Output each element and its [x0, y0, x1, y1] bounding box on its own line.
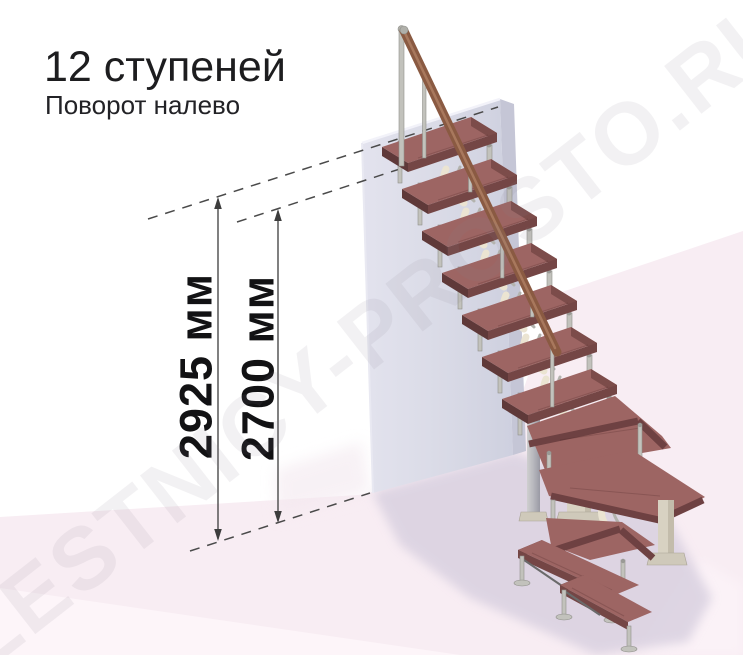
handrail-ferrule [400, 26, 408, 34]
staircase-diagram: 2925 мм 2700 мм [0, 0, 743, 655]
page-subtitle: Поворот налево [45, 90, 240, 120]
winder-tip-column-side [668, 500, 674, 555]
handrail-top-post [399, 28, 404, 166]
page-title: 12 ступеней [44, 43, 286, 91]
center-column-base [519, 512, 548, 521]
staircase-diagram-page: 2925 мм 2700 мм [0, 0, 743, 655]
